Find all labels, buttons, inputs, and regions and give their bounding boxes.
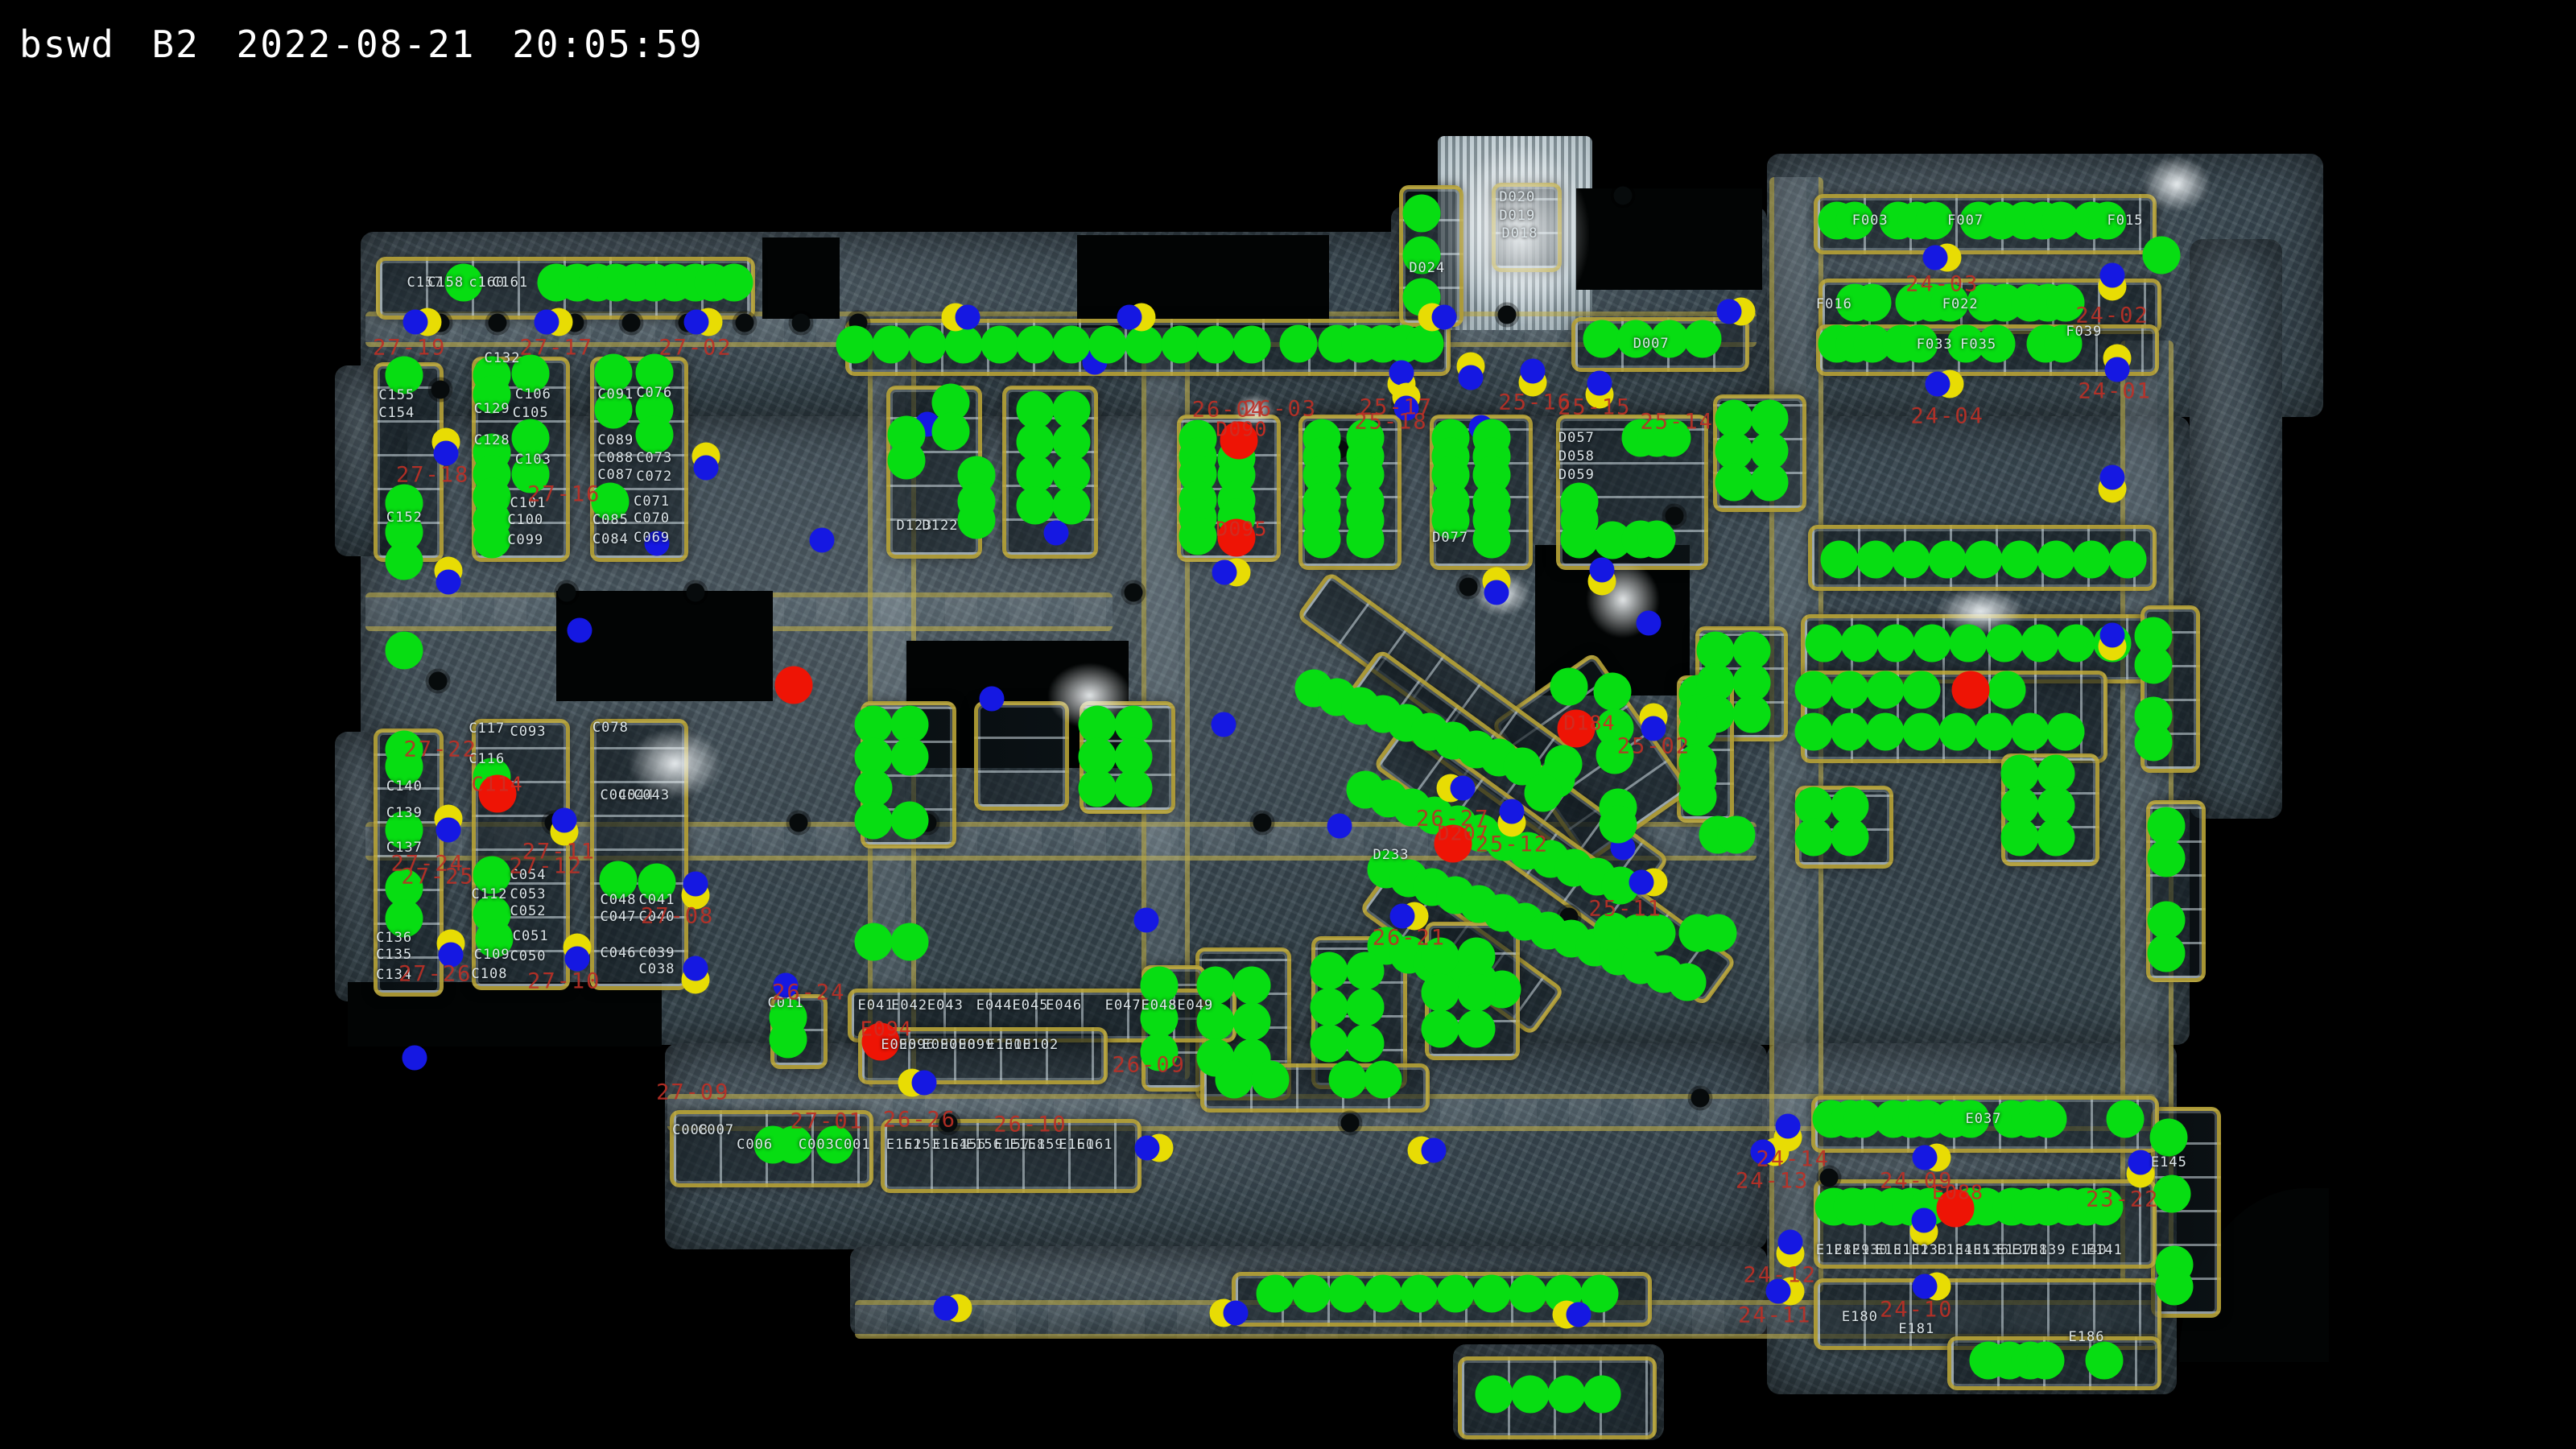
stall-label: D122: [923, 518, 959, 534]
free-spot-marker[interactable]: [1965, 540, 2003, 578]
free-spot-marker[interactable]: [1279, 324, 1317, 362]
zone-label: 24-03: [1905, 271, 1979, 296]
free-spot-marker[interactable]: [944, 326, 982, 364]
camera-blue-icon: [1778, 1230, 1803, 1255]
free-spot-marker[interactable]: [1560, 520, 1598, 558]
camera-blue-icon: [1135, 1135, 1160, 1160]
stall-label: C129: [474, 401, 510, 417]
zone-label: 26-10: [993, 1112, 1067, 1137]
free-spot-marker[interactable]: [1364, 1061, 1402, 1099]
stall-label: F022: [1942, 296, 1979, 312]
stall-label: C112: [472, 886, 508, 902]
free-spot-marker[interactable]: [1550, 668, 1587, 706]
alert-stall-label: D095: [1216, 518, 1267, 541]
free-spot-marker[interactable]: [1949, 625, 1987, 663]
free-spot-marker[interactable]: [1903, 671, 1941, 708]
camera-blue-icon: [551, 808, 576, 833]
free-spot-marker[interactable]: [1457, 938, 1495, 976]
free-spot-marker[interactable]: [1717, 815, 1755, 853]
zone-label: 26-26: [883, 1108, 956, 1133]
stall-label: C087: [597, 467, 634, 483]
free-spot-marker[interactable]: [1831, 713, 1868, 751]
zone-label: 27-19: [373, 336, 446, 361]
free-spot-marker[interactable]: [1794, 713, 1832, 751]
zone-label: 27-09: [656, 1080, 729, 1105]
stall-label: F003: [1852, 213, 1889, 229]
camera-blue-icon: [683, 872, 708, 897]
pillar-dot: [622, 314, 641, 332]
stall-label: E042: [891, 997, 927, 1013]
free-spot-marker[interactable]: [473, 520, 511, 558]
free-spot-marker[interactable]: [1637, 520, 1675, 558]
stall-label: C078: [592, 720, 629, 736]
zone-label: 23-22: [2086, 1187, 2159, 1212]
free-spot-marker[interactable]: [1476, 1375, 1513, 1413]
free-spot-marker[interactable]: [1856, 540, 1894, 578]
stall-label: E145: [2151, 1154, 2187, 1170]
sensor-dot[interactable]: [402, 1046, 427, 1071]
free-spot-marker[interactable]: [1867, 713, 1905, 751]
sensor-dot[interactable]: [1637, 611, 1662, 636]
stall-label: C109: [474, 947, 510, 963]
free-spot-marker[interactable]: [1794, 819, 1832, 857]
free-spot-marker[interactable]: [1017, 326, 1055, 364]
free-spot-marker[interactable]: [2135, 723, 2173, 761]
unscanned-void: [556, 591, 773, 701]
alert-spot-marker[interactable]: [774, 667, 812, 704]
free-spot-marker[interactable]: [2011, 713, 2049, 751]
camera-blue-icon: [535, 309, 559, 334]
stall-label: E041: [858, 997, 894, 1013]
zone-label: 24-12: [1744, 1263, 1817, 1288]
camera-blue-icon: [683, 956, 708, 980]
free-spot-marker[interactable]: [1421, 1010, 1459, 1048]
free-spot-marker[interactable]: [1292, 1275, 1330, 1313]
zone-label: 26-24: [772, 980, 845, 1005]
camera-blue-icon: [2128, 1150, 2153, 1175]
free-spot-marker[interactable]: [957, 502, 995, 539]
stall-label: C051: [513, 928, 549, 944]
free-spot-marker[interactable]: [1401, 1275, 1439, 1313]
stall-label: C047: [601, 909, 637, 925]
free-spot-marker[interactable]: [1985, 625, 2023, 663]
free-spot-marker[interactable]: [1311, 989, 1348, 1026]
free-spot-marker[interactable]: [1311, 952, 1348, 990]
free-spot-marker[interactable]: [854, 923, 892, 961]
pillar-dot: [1691, 1089, 1710, 1108]
free-spot-marker[interactable]: [890, 737, 928, 775]
camera-blue-icon: [1566, 1302, 1591, 1327]
pillar-dot: [429, 672, 448, 691]
stall-label: F007: [1947, 213, 1984, 229]
free-spot-marker[interactable]: [1053, 487, 1091, 525]
camera-blue-icon: [911, 1070, 936, 1095]
free-spot-marker[interactable]: [1257, 1275, 1294, 1313]
free-spot-marker[interactable]: [2142, 236, 2180, 274]
stall-label: C100: [507, 512, 543, 528]
free-spot-marker[interactable]: [635, 416, 673, 454]
free-spot-marker[interactable]: [1472, 520, 1510, 558]
free-spot-marker[interactable]: [2148, 935, 2186, 972]
stall-label: C052: [510, 903, 547, 919]
free-spot-marker[interactable]: [890, 801, 928, 839]
stall-label: D059: [1558, 467, 1595, 483]
free-spot-marker[interactable]: [1831, 819, 1868, 857]
stall-label: C006: [737, 1137, 773, 1153]
free-spot-marker[interactable]: [836, 326, 874, 364]
free-spot-marker[interactable]: [873, 326, 910, 364]
floor-plate: [2190, 239, 2282, 819]
stall-label: C089: [597, 432, 634, 448]
pillar-dot: [1498, 305, 1517, 324]
camera-blue-icon: [1717, 299, 1742, 324]
stall-label: F015: [2107, 213, 2144, 229]
free-spot-marker[interactable]: [1854, 284, 1892, 322]
alert-stall-label: C114: [471, 772, 522, 795]
free-spot-marker[interactable]: [890, 923, 928, 961]
sensor-dot[interactable]: [568, 618, 592, 643]
stall-label: C003: [799, 1137, 835, 1153]
zone-label: 27-25: [401, 865, 474, 890]
stall-label: C161: [492, 275, 528, 291]
free-spot-marker[interactable]: [1583, 320, 1621, 358]
stall-label: C039: [639, 945, 675, 961]
stall-label: F016: [1816, 296, 1852, 312]
free-spot-marker[interactable]: [1233, 1003, 1271, 1041]
camera-blue-icon: [1224, 1300, 1249, 1325]
free-spot-marker[interactable]: [1831, 671, 1868, 708]
camera-blue-icon: [1484, 580, 1509, 605]
camera-blue-icon: [1389, 361, 1414, 386]
stall-label: E044: [976, 997, 1013, 1013]
zone-label: 27-22: [404, 737, 477, 762]
stall-label: C071: [634, 493, 670, 510]
free-spot-marker[interactable]: [2026, 1342, 2064, 1380]
stall-label: E141: [2087, 1242, 2123, 1258]
zone-label: 25-14: [1641, 409, 1714, 434]
free-spot-marker[interactable]: [1347, 520, 1385, 558]
free-spot-marker[interactable]: [2155, 1268, 2193, 1306]
free-spot-marker[interactable]: [1669, 964, 1707, 1001]
free-spot-marker[interactable]: [1939, 713, 1977, 751]
stall-label: C154: [378, 405, 415, 421]
unscanned-void: [762, 237, 840, 319]
unscanned-void: [1077, 235, 1330, 328]
free-spot-marker[interactable]: [1311, 1025, 1348, 1063]
free-spot-marker[interactable]: [1328, 1275, 1366, 1313]
alert-stall-label: D207: [1437, 822, 1488, 845]
stall-label: D007: [1633, 336, 1670, 352]
free-spot-marker[interactable]: [1751, 464, 1789, 502]
stall-label: E049: [1177, 997, 1213, 1013]
zone-label: 24-10: [1880, 1298, 1953, 1323]
free-spot-marker[interactable]: [2047, 713, 2085, 751]
camera-blue-icon: [1521, 359, 1546, 384]
camera-blue-icon: [2100, 622, 2125, 647]
free-spot-marker[interactable]: [1684, 320, 1722, 358]
free-spot-marker[interactable]: [1053, 326, 1091, 364]
sensor-dot[interactable]: [1134, 908, 1159, 933]
stall-label: C105: [513, 405, 549, 421]
stall-label: D057: [1558, 430, 1595, 446]
free-spot-marker[interactable]: [2037, 540, 2074, 578]
alert-stall-label: D184: [1563, 712, 1615, 735]
stall-label: C073: [636, 450, 672, 466]
stall-label: C103: [515, 452, 551, 468]
stall-label: E102: [1022, 1037, 1059, 1053]
pillar-dot: [687, 584, 705, 602]
stall-label: C093: [510, 724, 547, 740]
stall-label: E139: [2030, 1242, 2066, 1258]
free-spot-marker[interactable]: [2073, 540, 2111, 578]
free-spot-marker[interactable]: [1805, 625, 1843, 663]
free-spot-marker[interactable]: [1017, 487, 1055, 525]
zone-label: 24-01: [2079, 379, 2152, 404]
camera-blue-icon: [1913, 1274, 1938, 1299]
pillar-dot: [1459, 578, 1478, 597]
free-spot-marker[interactable]: [1251, 1061, 1289, 1099]
free-spot-marker[interactable]: [1179, 518, 1217, 555]
stall-label: C069: [634, 530, 670, 546]
free-spot-marker[interactable]: [1867, 671, 1905, 708]
free-spot-marker[interactable]: [2109, 540, 2147, 578]
free-spot-marker[interactable]: [2148, 839, 2186, 877]
stall-label: C007: [698, 1122, 734, 1138]
stall-label: D077: [1432, 530, 1468, 546]
sensor-dot[interactable]: [1327, 814, 1352, 839]
pillar-dot: [1253, 814, 1272, 832]
pillar-dot: [431, 381, 450, 399]
free-spot-marker[interactable]: [1347, 952, 1385, 990]
free-spot-marker[interactable]: [1820, 540, 1858, 578]
alert-stall-label: E088: [1932, 1181, 1984, 1204]
free-spot-marker[interactable]: [2037, 819, 2074, 857]
pillar-dot: [1340, 1114, 1359, 1133]
camera-blue-icon: [1500, 799, 1525, 824]
scan-noise-patch: [2143, 156, 2210, 211]
camera-blue-icon: [684, 309, 709, 334]
free-spot-marker[interactable]: [888, 442, 926, 480]
stall-label: E043: [927, 997, 964, 1013]
free-spot-marker[interactable]: [1197, 326, 1235, 364]
free-spot-marker[interactable]: [1599, 806, 1637, 844]
camera-blue-icon: [1923, 246, 1948, 270]
free-spot-marker[interactable]: [1347, 1025, 1385, 1063]
free-spot-marker[interactable]: [1733, 696, 1771, 733]
free-spot-marker[interactable]: [1893, 540, 1930, 578]
stall-label: E046: [1046, 997, 1082, 1013]
zone-label: 25-17: [1360, 394, 1433, 419]
free-spot-marker[interactable]: [1215, 1061, 1253, 1099]
free-spot-marker[interactable]: [1364, 1275, 1402, 1313]
zone-label: 27-02: [658, 336, 732, 361]
camera-blue-icon: [1590, 557, 1615, 582]
free-spot-marker[interactable]: [854, 801, 892, 839]
pillar-dot: [488, 314, 506, 332]
zone-label: 24-11: [1738, 1303, 1811, 1328]
stall-label: C099: [507, 532, 543, 548]
free-spot-marker[interactable]: [2107, 1100, 2145, 1137]
pillar-dot: [1614, 187, 1633, 205]
free-spot-marker[interactable]: [386, 632, 423, 670]
zone-label: 26-21: [1373, 925, 1446, 950]
free-spot-marker[interactable]: [1794, 671, 1832, 708]
stall-label: E047: [1105, 997, 1141, 1013]
stall-label: D024: [1409, 260, 1445, 276]
free-spot-marker[interactable]: [1583, 1375, 1621, 1413]
camera-blue-icon: [1587, 370, 1612, 395]
zone-label: 27-16: [527, 481, 601, 506]
free-spot-marker[interactable]: [1511, 1375, 1549, 1413]
pillar-dot: [558, 584, 576, 602]
free-spot-marker[interactable]: [1524, 774, 1562, 811]
zone-label: 25-02: [1617, 734, 1690, 759]
stall-label: E161: [1077, 1137, 1113, 1153]
zone-label: 25-15: [1558, 394, 1631, 419]
free-spot-marker[interactable]: [1841, 625, 1879, 663]
stall-label: C072: [636, 469, 672, 485]
free-spot-marker[interactable]: [1913, 625, 1951, 663]
stall-label: E048: [1141, 997, 1178, 1013]
free-spot-marker[interactable]: [2000, 540, 2038, 578]
stall-label: C155: [378, 387, 415, 403]
free-spot-marker[interactable]: [1403, 194, 1441, 232]
free-spot-marker[interactable]: [1079, 770, 1117, 807]
free-spot-marker[interactable]: [1547, 1375, 1585, 1413]
camera-blue-icon: [1926, 372, 1951, 397]
camera-blue-icon: [1775, 1114, 1800, 1139]
alert-stall-label: D090: [1216, 417, 1267, 440]
pillar-dot: [792, 314, 811, 332]
free-spot-marker[interactable]: [1877, 625, 1915, 663]
free-spot-marker[interactable]: [2086, 1342, 2124, 1380]
alert-stall-label: E094: [861, 1018, 912, 1041]
free-spot-marker[interactable]: [909, 326, 947, 364]
pillar-dot: [1666, 506, 1684, 525]
sensor-dot[interactable]: [809, 528, 834, 553]
free-spot-marker[interactable]: [386, 542, 423, 580]
stall-label: E045: [1013, 997, 1049, 1013]
free-spot-marker[interactable]: [1699, 914, 1737, 952]
free-spot-marker[interactable]: [1233, 967, 1271, 1005]
stall-label: D019: [1499, 208, 1535, 224]
pillar-dot: [735, 314, 753, 332]
free-spot-marker[interactable]: [1437, 1275, 1475, 1313]
zone-label: 25-11: [1589, 896, 1662, 921]
camera-blue-icon: [2105, 357, 2130, 382]
free-spot-marker[interactable]: [1929, 540, 1967, 578]
zone-label: 27-26: [398, 961, 472, 986]
free-spot-marker[interactable]: [1472, 1275, 1510, 1313]
free-spot-marker[interactable]: [1089, 326, 1127, 364]
stall-label: D058: [1558, 448, 1595, 464]
zone-label: 27-08: [641, 903, 714, 928]
stall-label: E180: [1842, 1309, 1878, 1325]
zone-label: 27-12: [510, 854, 583, 879]
free-spot-marker[interactable]: [2029, 1100, 2067, 1137]
stall-label: C152: [386, 510, 423, 526]
free-spot-marker[interactable]: [1347, 989, 1385, 1026]
free-spot-marker[interactable]: [1697, 696, 1735, 733]
free-spot-marker[interactable]: [2150, 1119, 2188, 1157]
free-spot-marker[interactable]: [2000, 819, 2038, 857]
free-spot-marker[interactable]: [1975, 713, 2013, 751]
free-spot-marker[interactable]: [1457, 974, 1495, 1012]
camera-blue-icon: [1629, 870, 1654, 895]
stall-label: E037: [1966, 1111, 2002, 1127]
stall-label: C139: [386, 805, 423, 821]
stall-label: C136: [376, 930, 412, 946]
camera-blue-icon: [1422, 1138, 1447, 1163]
stall-label: C046: [601, 945, 637, 961]
free-spot-marker[interactable]: [1594, 672, 1632, 710]
stall-label: C132: [485, 350, 521, 366]
floorplan-map: 27-1927-1727-0227-1827-1626-0426-0325-18…: [0, 0, 2576, 1449]
free-spot-marker[interactable]: [716, 264, 753, 302]
free-spot-marker[interactable]: [931, 413, 969, 451]
free-spot-marker[interactable]: [980, 326, 1018, 364]
free-spot-marker[interactable]: [1421, 974, 1459, 1012]
zone-label: 24-02: [2075, 303, 2149, 328]
stall-label: D233: [1373, 847, 1410, 863]
free-spot-marker[interactable]: [2021, 625, 2059, 663]
stall-label: C128: [474, 432, 510, 448]
camera-blue-icon: [1212, 560, 1237, 585]
stall-label: F033: [1917, 336, 1953, 353]
free-spot-marker[interactable]: [2148, 902, 2186, 939]
alert-spot-marker[interactable]: [1952, 671, 1990, 708]
camera-blue-icon: [1432, 305, 1457, 330]
stall-label: D018: [1502, 225, 1538, 242]
stall-label: C088: [597, 450, 634, 466]
parking-monitor-app: 27-1927-1727-0227-1827-1626-0426-0325-18…: [0, 0, 2576, 1449]
free-spot-marker[interactable]: [2135, 646, 2173, 684]
stall-label: C043: [634, 787, 670, 803]
free-spot-marker[interactable]: [1509, 1275, 1546, 1313]
free-spot-marker[interactable]: [1903, 713, 1941, 751]
stall-label: C158: [427, 275, 464, 291]
sensor-dot[interactable]: [1212, 712, 1236, 737]
free-spot-marker[interactable]: [1115, 770, 1153, 807]
free-spot-marker[interactable]: [1328, 1061, 1366, 1099]
zone-label: 26-09: [1113, 1053, 1186, 1078]
camera-blue-icon: [1912, 1208, 1937, 1233]
free-spot-marker[interactable]: [1988, 671, 2025, 708]
camera-blue-icon: [1450, 776, 1475, 801]
free-spot-marker[interactable]: [1678, 778, 1716, 816]
camera-blue-icon: [433, 441, 458, 466]
zone-label: 27-10: [527, 968, 601, 993]
stall-label: C048: [601, 892, 637, 908]
stall-label: E186: [2069, 1329, 2105, 1345]
free-spot-marker[interactable]: [1161, 326, 1199, 364]
zone-label: 24-13: [1736, 1169, 1809, 1194]
unscanned-void: [1576, 188, 1761, 290]
free-spot-marker[interactable]: [1457, 1010, 1495, 1048]
free-spot-marker[interactable]: [770, 1020, 807, 1058]
stall-label: E181: [1898, 1321, 1934, 1337]
free-spot-marker[interactable]: [1233, 326, 1271, 364]
camera-blue-icon: [436, 818, 460, 843]
stall-label: C084: [592, 531, 629, 547]
free-spot-marker[interactable]: [1715, 464, 1752, 502]
free-spot-marker[interactable]: [2058, 625, 2095, 663]
stall-label: C140: [386, 778, 423, 795]
sensor-dot[interactable]: [980, 686, 1005, 711]
free-spot-marker[interactable]: [1125, 326, 1162, 364]
sensor-dot[interactable]: [1044, 521, 1069, 546]
free-spot-marker[interactable]: [1302, 520, 1340, 558]
